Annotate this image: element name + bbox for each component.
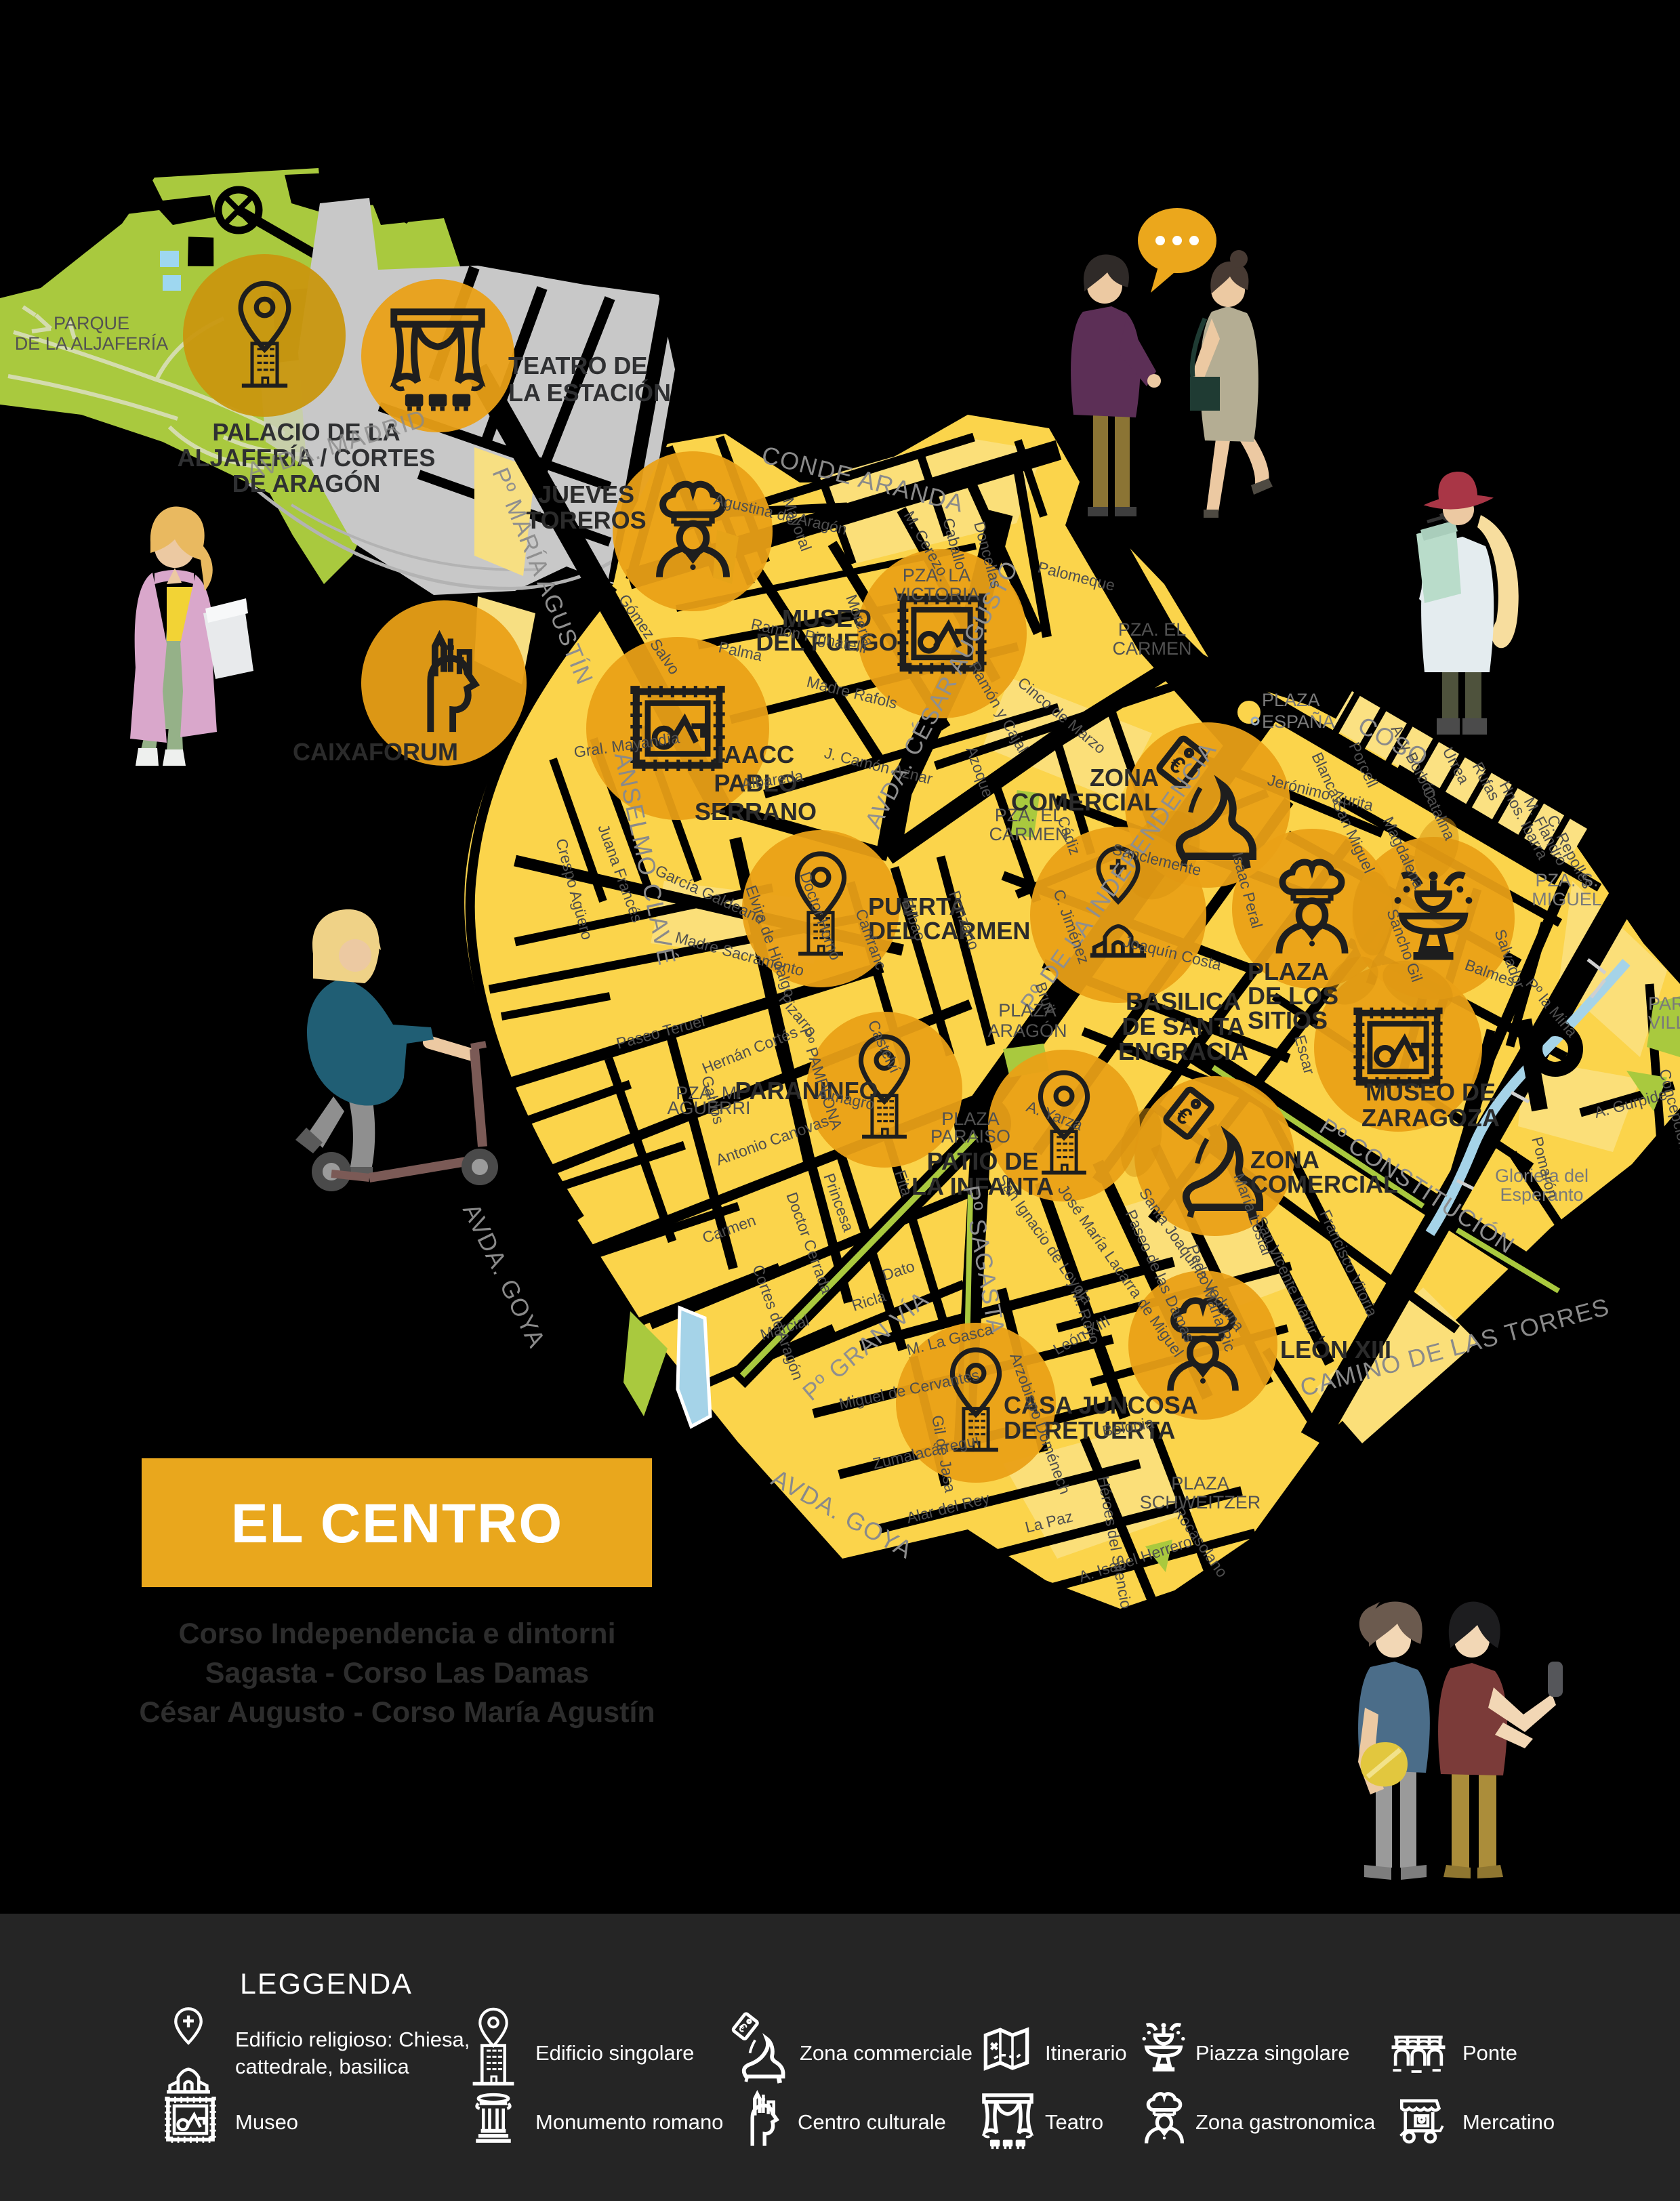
svg-text:PATIO DE: PATIO DE: [927, 1147, 1039, 1175]
svg-text:MUSEO DE: MUSEO DE: [1366, 1078, 1496, 1106]
svg-text:Ponte: Ponte: [1462, 2041, 1517, 2065]
svg-text:LA ESTACIÓN: LA ESTACIÓN: [508, 378, 671, 407]
svg-text:ARAGÓN: ARAGÓN: [987, 1020, 1067, 1041]
svg-text:Itinerario: Itinerario: [1045, 2041, 1127, 2065]
svg-text:VICTORIA: VICTORIA: [893, 584, 979, 604]
svg-text:ESPAÑA: ESPAÑA: [1262, 711, 1335, 732]
svg-text:LEÓN XIII: LEÓN XIII: [1280, 1335, 1391, 1363]
svg-text:TOREROS: TOREROS: [526, 506, 646, 534]
svg-text:EL CENTRO: EL CENTRO: [231, 1493, 563, 1555]
svg-text:Mercatino: Mercatino: [1462, 2110, 1555, 2134]
svg-text:VILLAFE: VILLAFE: [1648, 1012, 1680, 1033]
svg-text:Centro culturale: Centro culturale: [798, 2110, 946, 2134]
svg-text:DE LOS: DE LOS: [1248, 982, 1338, 1010]
svg-text:ZARAGOZA: ZARAGOZA: [1361, 1104, 1500, 1132]
svg-text:TEATRO DE: TEATRO DE: [508, 352, 647, 379]
svg-text:PARQUE: PARQUE: [54, 313, 129, 333]
svg-text:Teatro: Teatro: [1045, 2110, 1103, 2134]
svg-text:Edificio religioso: Chiesa,: Edificio religioso: Chiesa,: [235, 2028, 470, 2051]
svg-text:Sagasta - Corso Las Damas: Sagasta - Corso Las Damas: [205, 1657, 589, 1689]
svg-text:Edificio singolare: Edificio singolare: [535, 2041, 694, 2065]
svg-text:MIGUEL: MIGUEL: [1532, 889, 1602, 909]
svg-text:PARAISO: PARAISO: [930, 1126, 1010, 1147]
svg-text:PLAZA: PLAZA: [1262, 690, 1320, 710]
svg-text:Monumento romano: Monumento romano: [535, 2110, 723, 2134]
svg-text:Zona commerciale: Zona commerciale: [800, 2041, 972, 2065]
svg-text:Museo: Museo: [235, 2110, 298, 2134]
svg-text:DEL CARMEN: DEL CARMEN: [868, 917, 1030, 945]
svg-text:PARQ: PARQ: [1648, 993, 1680, 1014]
svg-text:BASILICA: BASILICA: [1126, 987, 1241, 1015]
svg-text:cattedrale, basilica: cattedrale, basilica: [235, 2055, 410, 2078]
svg-text:ENGRACIA: ENGRACIA: [1118, 1037, 1248, 1065]
svg-text:SERRANO: SERRANO: [695, 798, 817, 825]
svg-text:César Augusto - Corso María Ag: César Augusto - Corso María Agustín: [139, 1696, 655, 1729]
svg-text:LEGGENDA: LEGGENDA: [240, 1968, 413, 2000]
svg-text:CAIXAFORUM: CAIXAFORUM: [293, 738, 458, 766]
svg-text:DE LA ALJAFERÍA: DE LA ALJAFERÍA: [15, 333, 169, 354]
svg-text:Zona gastronomica: Zona gastronomica: [1195, 2110, 1376, 2134]
svg-text:PZA. EL: PZA. EL: [1118, 619, 1187, 640]
svg-text:SITIOS: SITIOS: [1248, 1006, 1328, 1034]
svg-text:CARMEN: CARMEN: [989, 824, 1068, 844]
svg-text:DE SANTA: DE SANTA: [1122, 1012, 1244, 1040]
svg-text:CARMEN: CARMEN: [1112, 638, 1191, 659]
svg-text:IAACC: IAACC: [717, 741, 794, 768]
svg-text:PLAZA: PLAZA: [1171, 1473, 1229, 1494]
svg-text:Piazza singolare: Piazza singolare: [1195, 2041, 1349, 2065]
svg-text:COMERCIAL: COMERCIAL: [1011, 788, 1159, 816]
svg-text:ZONA: ZONA: [1090, 764, 1159, 791]
svg-text:PLAZA: PLAZA: [1248, 958, 1329, 985]
svg-text:Corso Independencia e dintorni: Corso Independencia e dintorni: [178, 1618, 615, 1650]
svg-text:JUEVES: JUEVES: [538, 480, 634, 508]
svg-text:SCHWEITZER: SCHWEITZER: [1140, 1492, 1261, 1513]
svg-text:ZONA: ZONA: [1250, 1146, 1319, 1174]
